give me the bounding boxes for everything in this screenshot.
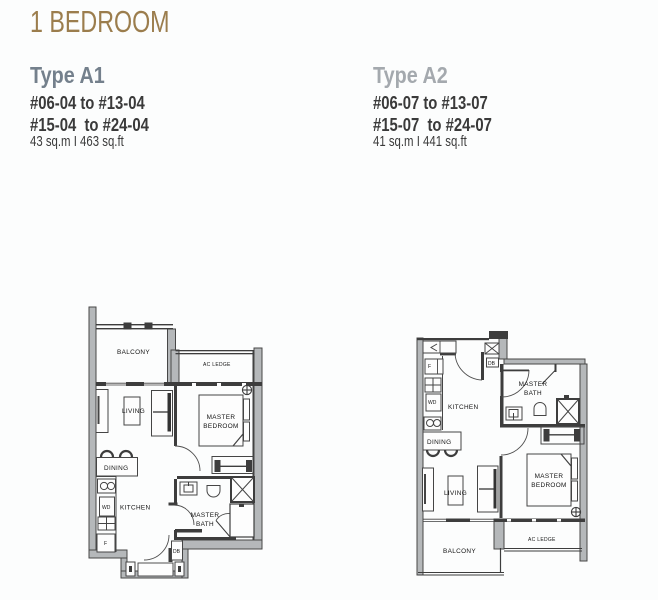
svg-text:BEDROOM: BEDROOM — [203, 423, 238, 430]
svg-text:MASTER: MASTER — [535, 473, 564, 480]
svg-text:WD: WD — [428, 400, 437, 406]
svg-text:MASTER: MASTER — [519, 381, 548, 388]
svg-text:BEDROOM: BEDROOM — [531, 482, 566, 489]
svg-text:BATH: BATH — [196, 521, 214, 528]
svg-text:BALCONY: BALCONY — [443, 548, 476, 555]
svg-text:F: F — [104, 541, 107, 547]
svg-text:BATH: BATH — [524, 390, 542, 397]
svg-text:MASTER: MASTER — [191, 512, 220, 519]
svg-text:WD: WD — [102, 505, 111, 511]
svg-text:MASTER: MASTER — [207, 414, 236, 421]
svg-text:KITCHEN: KITCHEN — [448, 404, 479, 411]
svg-text:AC LEDGE: AC LEDGE — [528, 537, 556, 543]
svg-text:DINING: DINING — [104, 465, 128, 472]
svg-text:LIVING: LIVING — [122, 408, 145, 415]
svg-text:DB: DB — [173, 549, 181, 555]
svg-text:DB: DB — [488, 361, 496, 367]
svg-text:AC LEDGE: AC LEDGE — [203, 362, 231, 368]
svg-text:LIVING: LIVING — [444, 490, 467, 497]
svg-text:KITCHEN: KITCHEN — [120, 504, 151, 511]
svg-text:BALCONY: BALCONY — [117, 349, 150, 356]
svg-text:DINING: DINING — [427, 439, 451, 446]
svg-text:F: F — [428, 364, 431, 370]
